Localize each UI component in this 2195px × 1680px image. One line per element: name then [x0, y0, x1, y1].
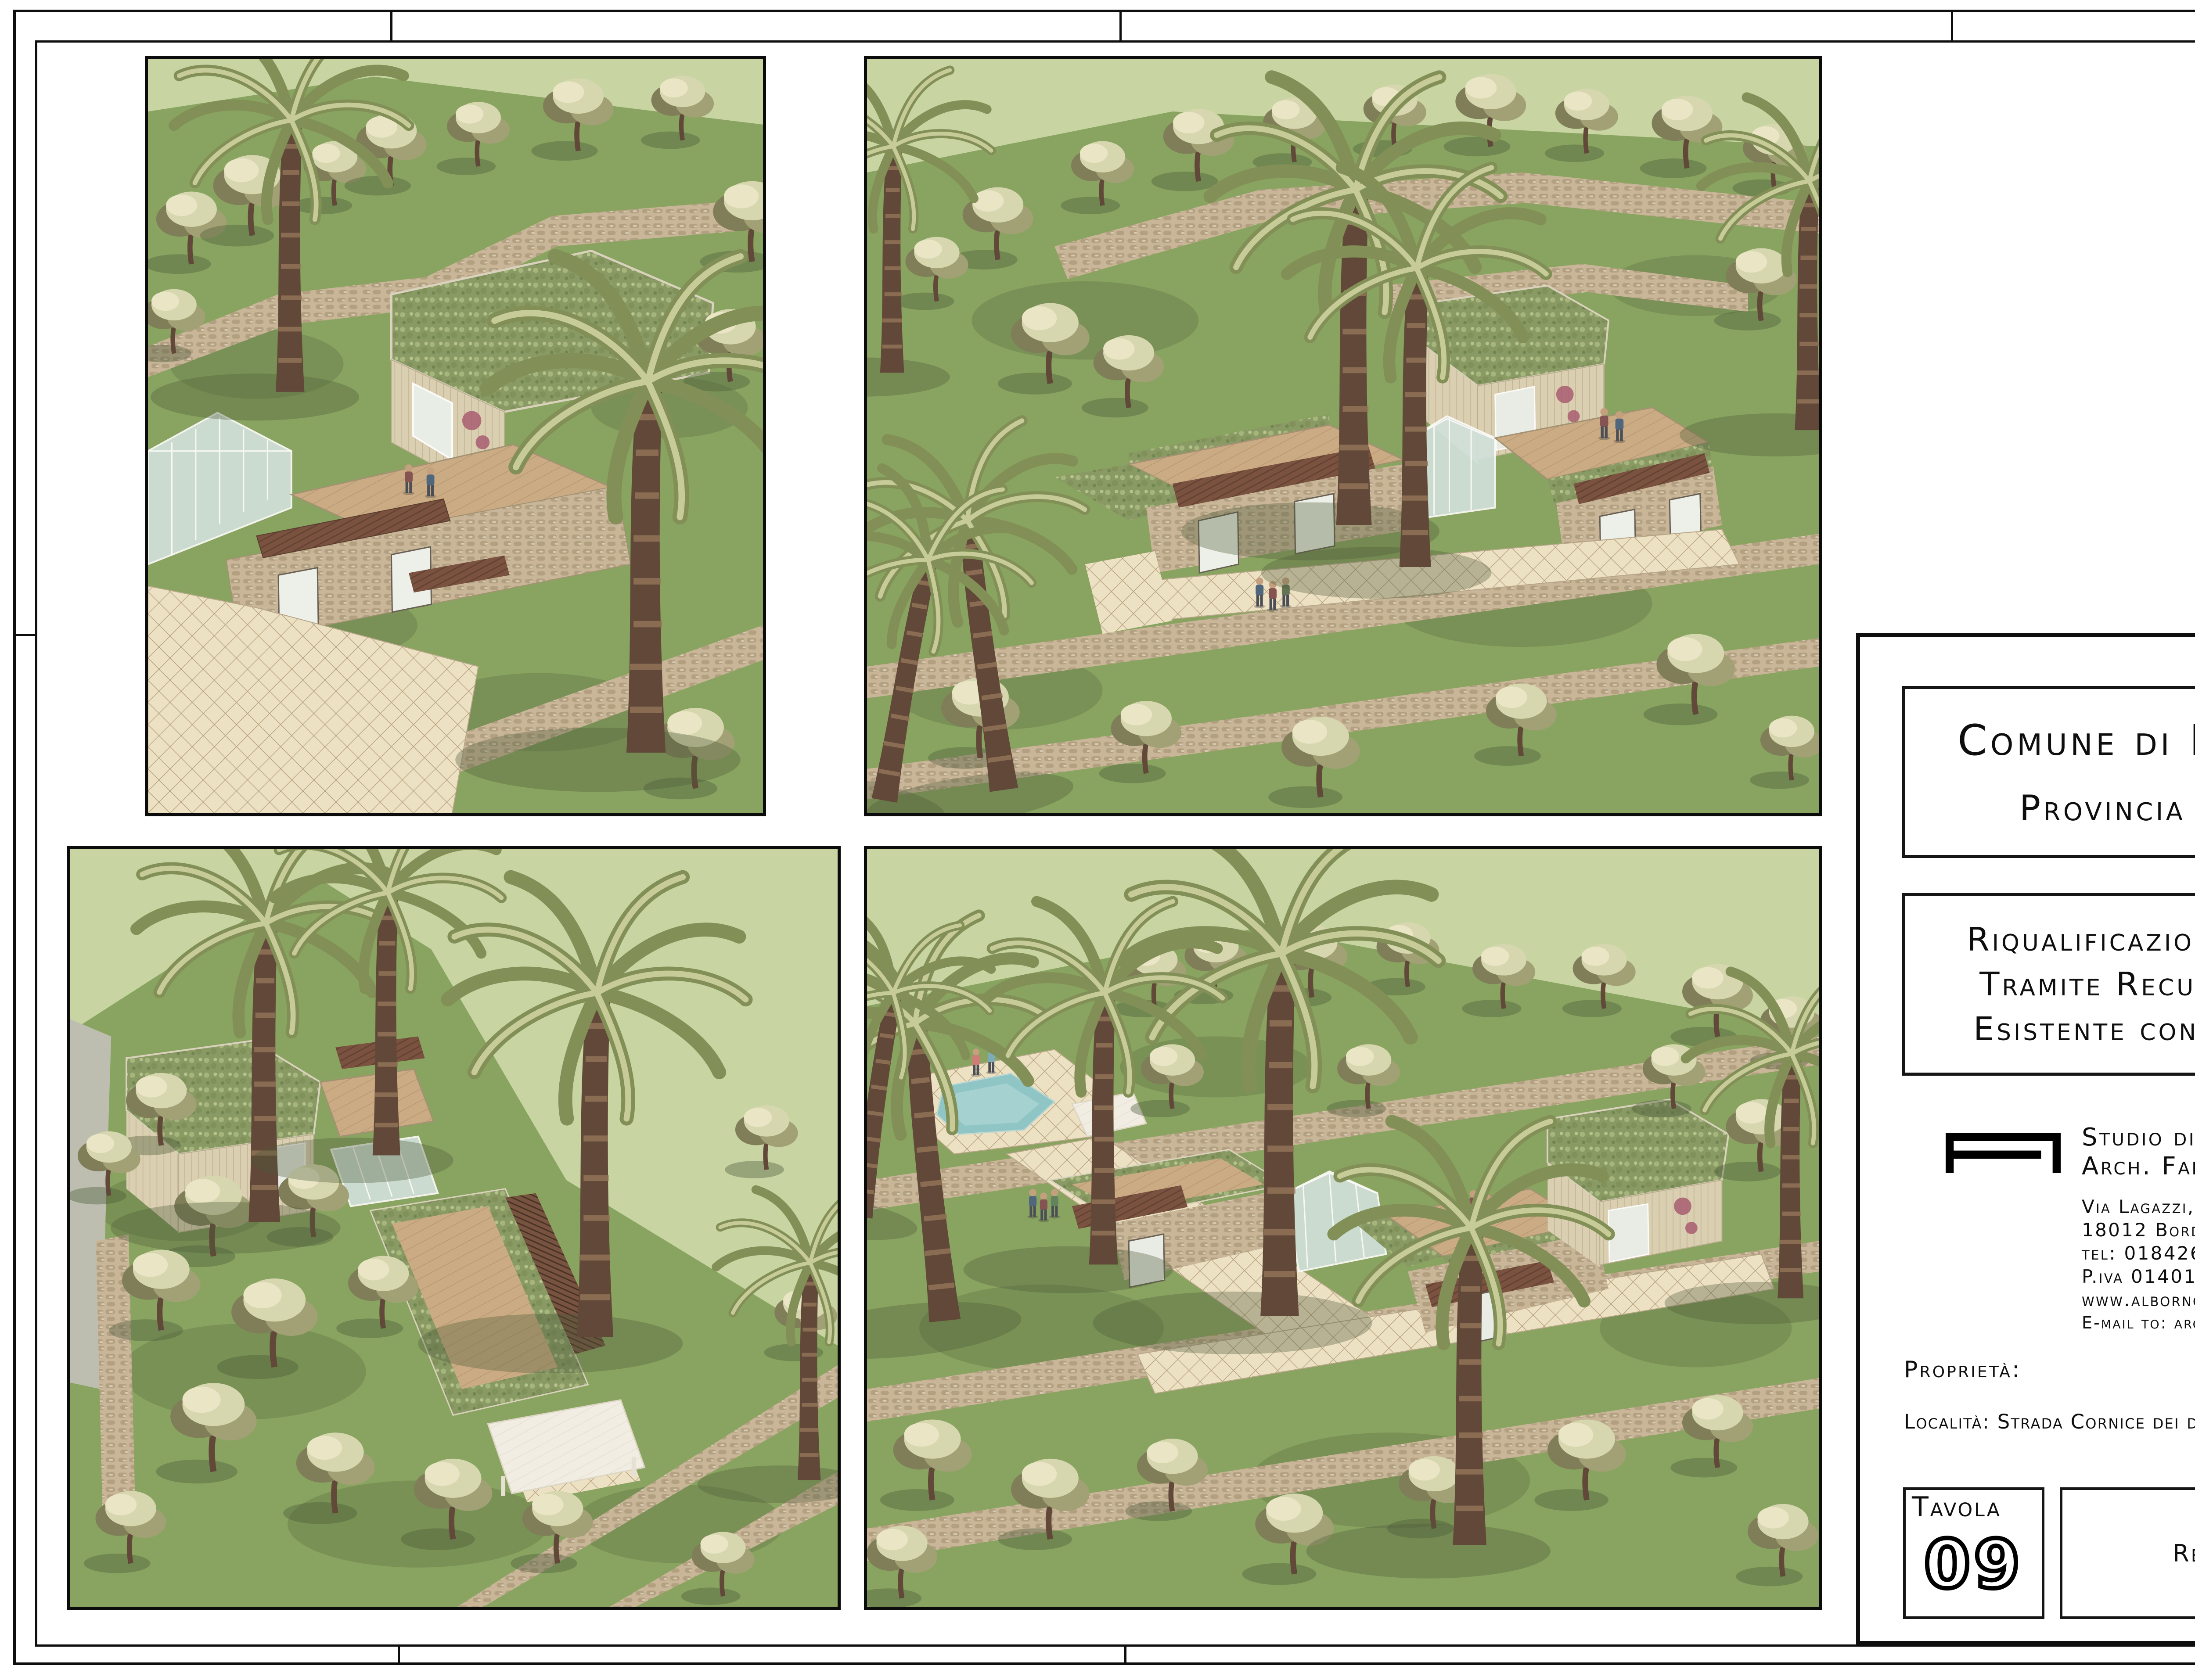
studio-phone-line: tel: 0184262529 fax: 0184268661: [2082, 1242, 2195, 1265]
studio-name-line-2: Arch. Fabrizio Alborno: [2082, 1152, 2195, 1181]
vintage-wash: [148, 59, 763, 813]
tavola-cell: Tavola 09: [1903, 1487, 2044, 1619]
studio-address-line: Via Lagazzi, 10: [2082, 1195, 2195, 1218]
content-label: Render: [2173, 1540, 2195, 1567]
province-title: Provincia di Imperia: [2019, 788, 2195, 829]
tavola-label: Tavola: [1906, 1490, 2042, 1523]
fold-mark-top-1: [390, 10, 392, 43]
studio-name: Studio di Architettura Arch. Fabrizio Al…: [2082, 1123, 2195, 1181]
render-panel-1: [145, 56, 766, 816]
studio-email-line: E-mail to: arch.fabrizioalborno@gmail.co…: [2082, 1311, 2195, 1335]
project-title-box: Riqualificazione Ambientale Tramite Recu…: [1902, 893, 2195, 1076]
studio-name-line-1: Studio di Architettura: [2082, 1123, 2195, 1152]
tavola-number: 09: [1924, 1531, 2024, 1598]
studio-website-line: www.alborno.com: [2082, 1288, 2195, 1311]
render-panel-2: [864, 56, 1822, 816]
render-panel-4: [864, 846, 1822, 1610]
render-illustration-4: [867, 849, 1819, 1607]
drawing-sheet: Comune di Bordighera Provincia di Imperi…: [0, 0, 2195, 1680]
alborno-monogram-icon: [1946, 1133, 2061, 1173]
fold-mark-bottom-1: [398, 1644, 400, 1665]
fold-mark-top-2: [1119, 10, 1122, 43]
property-label: Proprietà:: [1904, 1357, 2022, 1383]
municipality-title: Comune di Bordighera: [1958, 716, 2195, 765]
content-cell: Render: [2060, 1487, 2195, 1619]
location-line: Località: Strada Cornice dei due Golfi s…: [1904, 1410, 2195, 1433]
project-title-line-1: Riqualificazione Ambientale: [1967, 917, 2195, 962]
fold-mark-top-3: [1951, 10, 1953, 43]
title-block: Comune di Bordighera Provincia di Imperi…: [1856, 633, 2195, 1645]
render-illustration-1: [148, 59, 763, 813]
studio-contact-block: Via Lagazzi, 10 18012 Bordighera, im tel…: [2082, 1195, 2195, 1335]
studio-city-line: 18012 Bordighera, im: [2082, 1218, 2195, 1242]
render-illustration-2: [867, 59, 1819, 813]
municipality-box: Comune di Bordighera Provincia di Imperi…: [1902, 686, 2195, 858]
project-title-line-3: Esistente con Ampliamento: [1973, 1007, 2195, 1052]
studio-vat-line: P.iva 01401970080: [2082, 1265, 2195, 1288]
fold-mark-left: [13, 634, 37, 636]
project-title-line-2: Tramite Recupero Rustico: [1979, 962, 2195, 1007]
render-panel-3: [67, 846, 841, 1610]
render-illustration-3: [70, 849, 838, 1607]
fold-mark-bottom-2: [1124, 1644, 1126, 1665]
